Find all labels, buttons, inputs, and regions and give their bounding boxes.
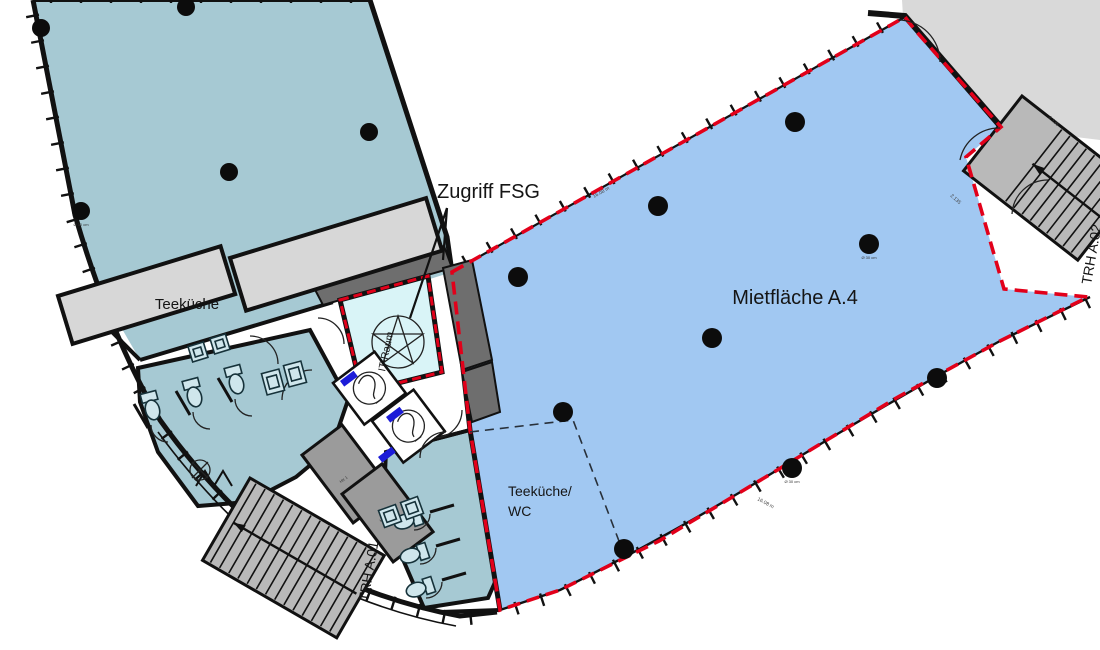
kitchen-label: Teeküche bbox=[155, 296, 219, 313]
facade-tick bbox=[470, 612, 471, 625]
column-note: Ø 30 cm bbox=[861, 255, 877, 260]
floor-plan-page: HK 1 HK 2 bbox=[0, 0, 1100, 650]
facade-dimension-note: 16.08 m bbox=[756, 496, 775, 510]
column-note: Ø 30 cm bbox=[73, 222, 89, 227]
kitchen-wc-label-line2: WC bbox=[508, 503, 531, 519]
kitchen-wc-label-line1: Teeküche/ bbox=[508, 483, 572, 499]
column-note: Ø 30 cm bbox=[784, 479, 800, 484]
room-wc-left bbox=[138, 330, 348, 506]
sink-icon bbox=[210, 334, 230, 354]
sink-icon bbox=[188, 342, 208, 362]
floor-plan-drawing: HK 1 HK 2 bbox=[0, 0, 1100, 650]
access-label: Zugriff FSG bbox=[437, 181, 540, 203]
rental-area-label: Mietfläche A.4 bbox=[732, 287, 858, 309]
